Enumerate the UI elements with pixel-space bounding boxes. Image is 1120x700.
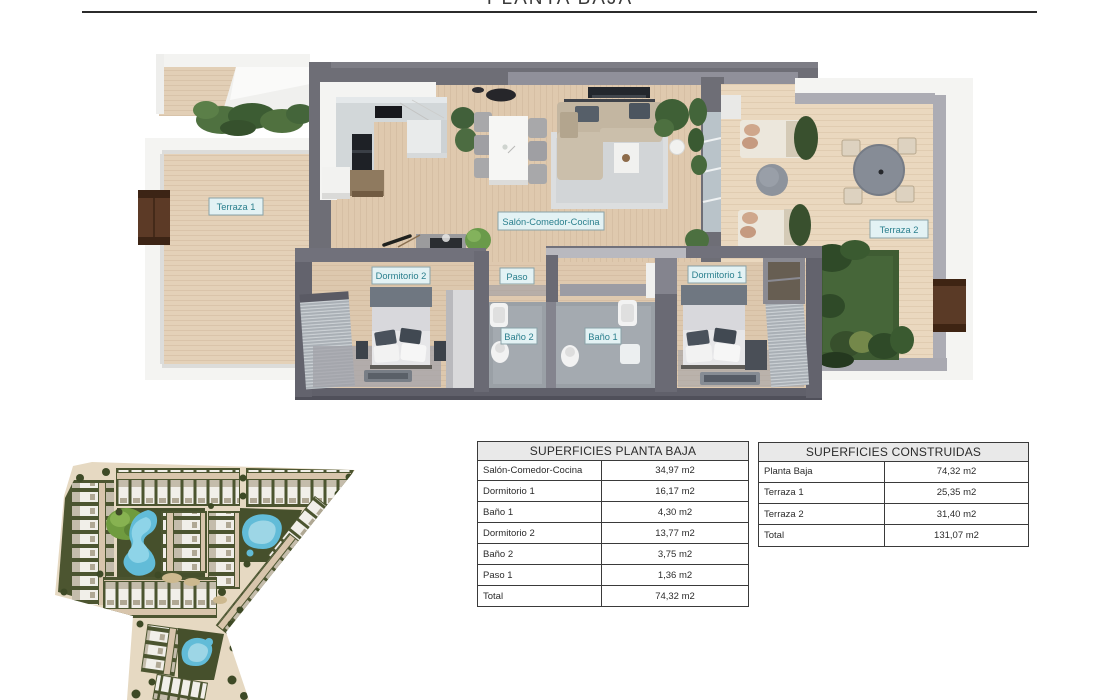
- svg-text:Terraza 2: Terraza 2: [880, 225, 919, 235]
- svg-text:Dormitorio 2: Dormitorio 2: [376, 271, 427, 281]
- svg-text:Terraza 1: Terraza 1: [217, 202, 256, 212]
- svg-text:Dormitorio 1: Dormitorio 1: [692, 270, 743, 280]
- svg-text:Baño 2: Baño 2: [504, 332, 533, 342]
- svg-text:Salón-Comedor-Cocina: Salón-Comedor-Cocina: [502, 217, 600, 227]
- svg-text:Paso: Paso: [506, 272, 527, 282]
- svg-text:Baño 1: Baño 1: [588, 332, 617, 342]
